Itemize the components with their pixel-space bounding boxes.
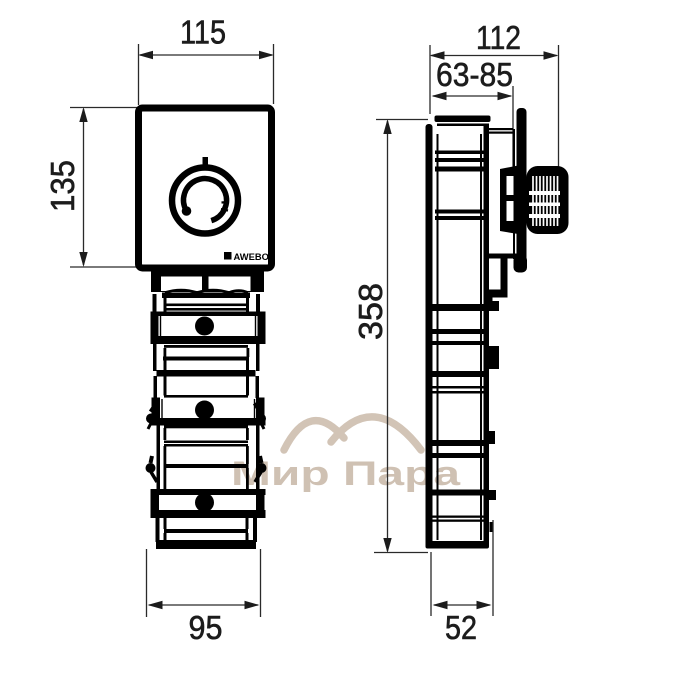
svg-text:115: 115 <box>180 14 226 51</box>
svg-text:358: 358 <box>352 283 389 340</box>
svg-text:63-85: 63-85 <box>436 56 513 93</box>
svg-text:52: 52 <box>445 609 477 646</box>
svg-text:AWEBO: AWEBO <box>234 252 270 262</box>
svg-text:135: 135 <box>44 160 81 212</box>
svg-text:112: 112 <box>476 19 521 56</box>
svg-text:95: 95 <box>189 609 223 646</box>
